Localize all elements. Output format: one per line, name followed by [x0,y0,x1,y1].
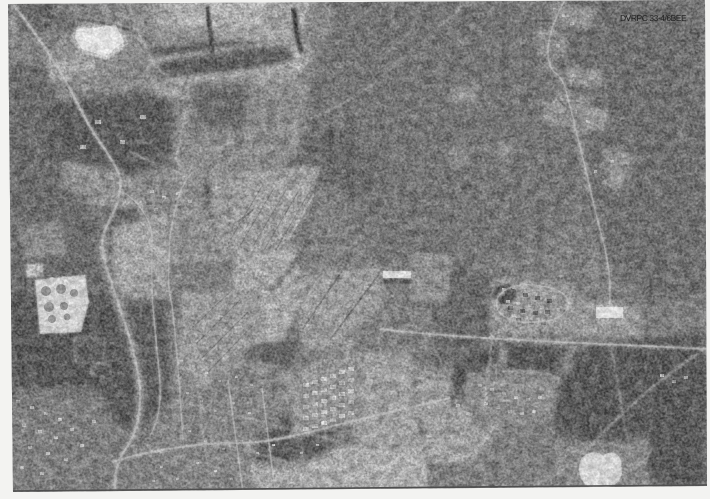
svg-text:DVRPC 33-4/6BEE: DVRPC 33-4/6BEE [620,13,687,23]
